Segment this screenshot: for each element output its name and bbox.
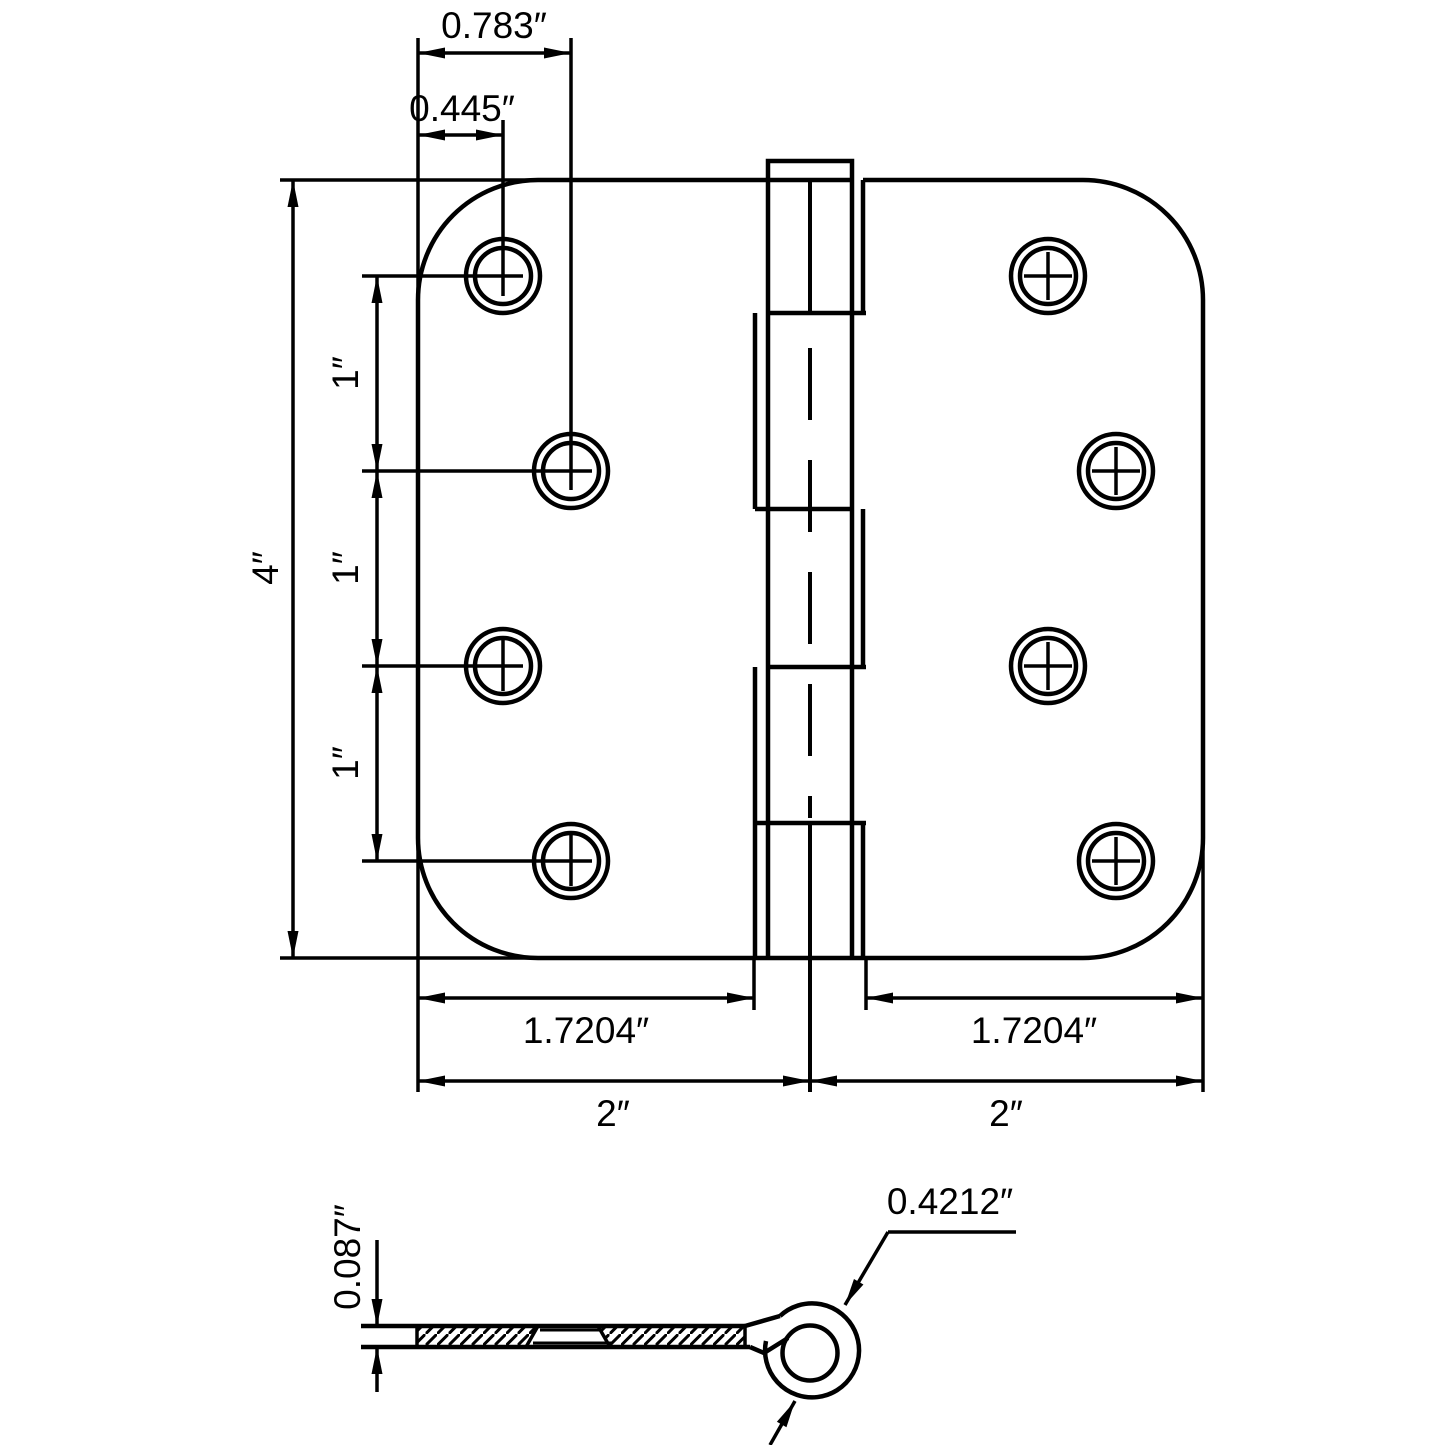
screw-hole — [1079, 824, 1153, 898]
technical-drawing-page: 0.783″ 0.445″ 4″ 1″ 1″ 1″ 1.7204″ 1.7204… — [0, 0, 1445, 1445]
hinge-technical-drawing: 0.783″ 0.445″ 4″ 1″ 1″ 1″ 1.7204″ 1.7204… — [0, 0, 1445, 1445]
dim-label-top-inner: 0.445″ — [409, 88, 515, 129]
screw-hole — [1011, 239, 1085, 313]
leader-arrow-knuckle — [845, 1232, 888, 1305]
front-view — [418, 161, 1203, 1092]
side-view — [361, 1303, 859, 1397]
hatch-region-right — [598, 1326, 745, 1347]
screw-hole — [1011, 629, 1085, 703]
hatch-region-left — [417, 1326, 538, 1347]
screw-holes-left — [466, 239, 608, 898]
front-view-dim-labels: 0.783″ 0.445″ 4″ 1″ 1″ 1″ 1.7204″ 1.7204… — [245, 5, 1097, 1134]
dim-label-spacing-2: 1″ — [325, 551, 366, 585]
strip-taper — [745, 1316, 780, 1326]
knuckle-loop — [750, 1303, 859, 1397]
side-view-dim-labels: 0.087″ 0.4212″ — [327, 1181, 1013, 1310]
barrel — [755, 161, 866, 1092]
dim-label-spacing-1: 1″ — [325, 356, 366, 390]
dim-label-leaf-left: 1.7204″ — [523, 1010, 649, 1051]
dim-label-thickness: 0.087″ — [327, 1204, 368, 1310]
right-leaf-outline — [1083, 180, 1203, 958]
screw-holes-right — [1011, 239, 1153, 898]
dim-label-half-right: 2″ — [989, 1093, 1023, 1134]
dim-label-height: 4″ — [245, 551, 286, 585]
dim-label-top-outer: 0.783″ — [441, 5, 547, 46]
leader-arrow-bottom — [770, 1401, 795, 1445]
loop-inner-circle — [783, 1326, 838, 1381]
dim-label-knuckle-diameter: 0.4212″ — [887, 1181, 1013, 1222]
dim-label-spacing-3: 1″ — [325, 746, 366, 780]
dim-label-half-left: 2″ — [596, 1093, 630, 1134]
dim-label-leaf-right: 1.7204″ — [971, 1010, 1097, 1051]
pin-cap — [768, 161, 852, 180]
screw-hole — [1079, 434, 1153, 508]
section-hatching — [417, 1326, 745, 1347]
